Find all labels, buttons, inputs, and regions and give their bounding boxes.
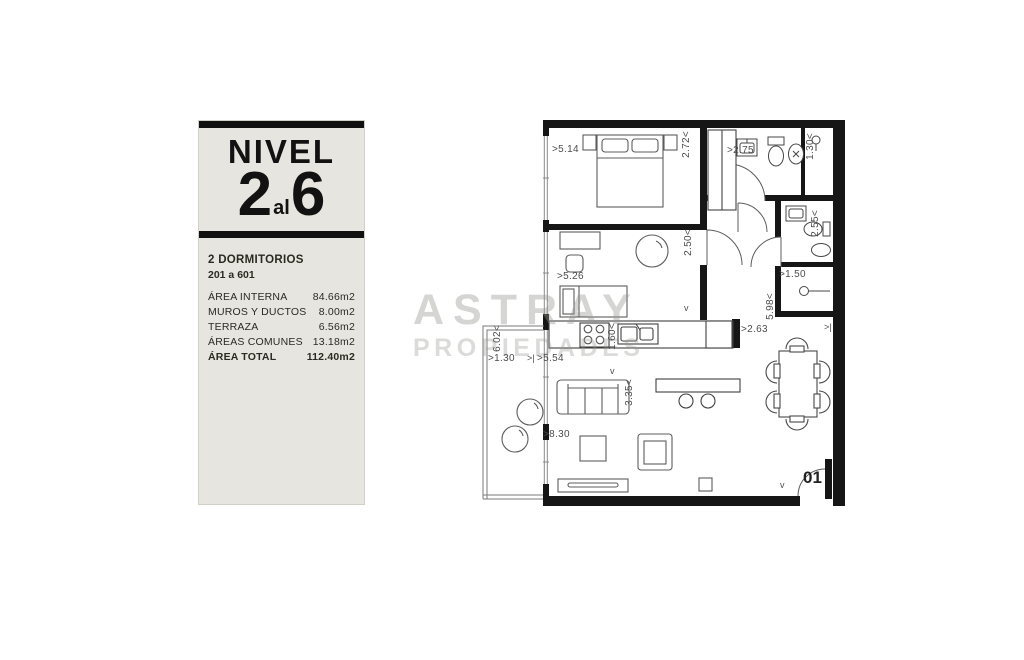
area-value: 6.56m2 xyxy=(319,320,355,335)
bedroom1-door xyxy=(738,203,767,232)
area-total-label: ÁREA TOTAL xyxy=(208,350,276,365)
toilet xyxy=(769,146,784,166)
desk xyxy=(560,232,600,249)
area-row: MUROS Y DUCTOS 8.00m2 xyxy=(208,305,355,320)
arrow-mark: v xyxy=(684,304,689,313)
fridge xyxy=(706,321,732,348)
desk-chair xyxy=(566,255,583,272)
pillow xyxy=(632,139,658,152)
floor-plan-svg xyxy=(480,118,845,508)
shower-head-icon xyxy=(800,287,809,296)
area-total-row: ÁREA TOTAL 112.40m2 xyxy=(208,350,355,365)
toilet-tank xyxy=(768,137,784,145)
dim-label: 2.72< xyxy=(681,131,692,158)
dim-label: >1.30 xyxy=(488,353,515,364)
unit-number: 01 xyxy=(799,468,826,488)
level-info-panel: NIVEL 2 al 6 2 DORMITORIOS 201 a 601 ÁRE… xyxy=(198,120,365,505)
toilet-tank xyxy=(823,222,830,236)
dim-label: >2.75 xyxy=(727,145,754,156)
dim-label: >1.50 xyxy=(779,269,806,280)
dim-label: 5.98< xyxy=(765,293,776,320)
area-row: ÁREA INTERNA 84.66m2 xyxy=(208,290,355,305)
area-value: 13.18m2 xyxy=(313,335,355,350)
bedroom-1 xyxy=(583,135,677,207)
apartment-type: 2 DORMITORIOS xyxy=(208,254,355,266)
dim-label: >5.26 xyxy=(557,271,584,282)
divider-bar-top xyxy=(199,121,364,128)
round-table xyxy=(517,399,543,425)
dim-label: 1.30< xyxy=(805,133,816,160)
nightstand xyxy=(664,135,677,150)
area-total-value: 112.40m2 xyxy=(307,350,355,365)
bedroom2-door xyxy=(707,230,742,265)
nightstand xyxy=(583,135,596,150)
shower xyxy=(800,287,831,296)
wardrobe xyxy=(708,130,736,210)
dim-label: >2.63 xyxy=(741,324,768,335)
unit-range: 201 a 601 xyxy=(208,269,355,281)
arrow-mark: >| xyxy=(824,323,832,332)
side-table xyxy=(699,478,712,491)
floor-plan: >5.14 2.72< >2.75 1.30< 2.55< >1.50 5.98… xyxy=(480,118,845,508)
area-value: 84.66m2 xyxy=(313,290,355,305)
area-label: MUROS Y DUCTOS xyxy=(208,305,306,320)
stool xyxy=(701,394,715,408)
dim-label: 2.55< xyxy=(810,210,821,237)
round-table xyxy=(502,426,528,452)
divider-bar-bottom xyxy=(199,231,364,238)
arrow-mark: v xyxy=(780,481,785,490)
island-bar xyxy=(656,379,740,408)
arrow-mark: v xyxy=(610,367,615,376)
level-to: 6 xyxy=(291,168,325,223)
area-label: ÁREAS COMUNES xyxy=(208,335,303,350)
stove xyxy=(580,323,609,347)
level-range: 2 al 6 xyxy=(199,168,364,223)
level-title: NIVEL xyxy=(199,135,364,168)
bidet xyxy=(812,244,831,257)
area-row: ÁREAS COMUNES 13.18m2 xyxy=(208,335,355,350)
dim-label: >5.14 xyxy=(552,144,579,155)
coffee-table xyxy=(580,436,606,461)
bathroom2-door xyxy=(751,237,781,267)
area-label: TERRAZA xyxy=(208,320,258,335)
arrow-mark: >| xyxy=(527,354,535,363)
armchair-cushion xyxy=(644,441,666,464)
dining-table xyxy=(779,351,817,417)
dim-label: >8.30 xyxy=(543,429,570,440)
level-from: 2 xyxy=(238,168,272,223)
area-value: 8.00m2 xyxy=(319,305,355,320)
area-row: TERRAZA 6.56m2 xyxy=(208,320,355,335)
dim-label: 6.02< xyxy=(492,325,503,352)
level-connector: al xyxy=(273,200,290,218)
kitchen xyxy=(549,321,733,348)
dining-area xyxy=(766,338,830,430)
terrace-tables xyxy=(502,399,543,452)
dim-label: 3.35< xyxy=(624,379,635,406)
stool xyxy=(679,394,693,408)
pillow xyxy=(563,289,574,314)
round-chair xyxy=(636,235,668,267)
dim-label: 2.50< xyxy=(683,229,694,256)
dim-label: 1.60< xyxy=(607,323,618,350)
pillow xyxy=(602,139,628,152)
apartment-details: 2 DORMITORIOS 201 a 601 ÁREA INTERNA 84.… xyxy=(199,238,364,365)
bathroom-2 xyxy=(786,206,831,257)
area-label: ÁREA INTERNA xyxy=(208,290,287,305)
dim-label: >5.54 xyxy=(537,353,564,364)
